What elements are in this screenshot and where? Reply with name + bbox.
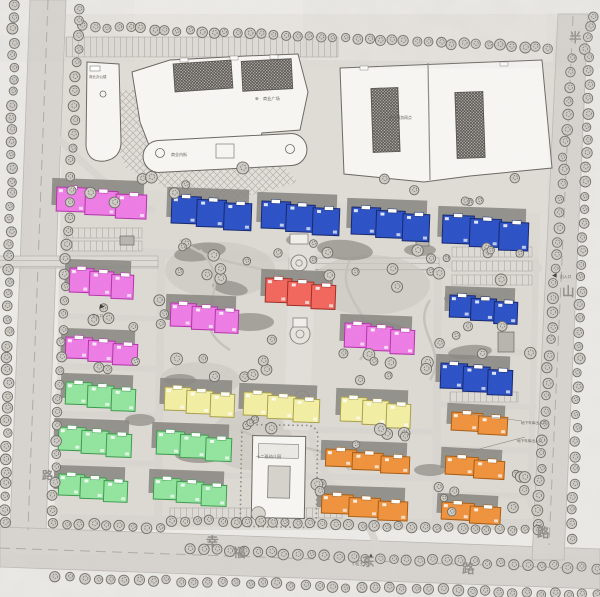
site-plan-image: 商业办公楼⊕商业广场商业服务网点商业内街十二班幼儿园地下车库出入口地下车库出入口… — [0, 0, 600, 597]
paper-texture — [0, 0, 600, 597]
master-plan-drawing: 商业办公楼⊕商业广场商业服务网点商业内街十二班幼儿园地下车库出入口地下车库出入口… — [0, 0, 600, 597]
